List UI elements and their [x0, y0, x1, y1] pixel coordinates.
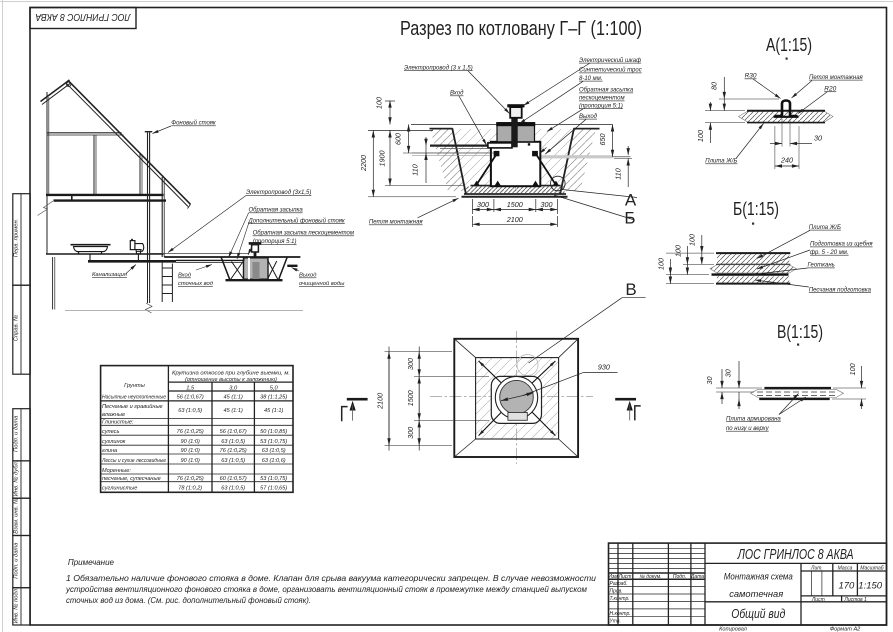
- svg-text:сточных вод из дома. (См. рис.: сточных вод из дома. (См. рис. дополните…: [66, 596, 311, 605]
- svg-text:Геоткань: Геоткань: [808, 263, 835, 269]
- svg-text:63 (1:0,5): 63 (1:0,5): [221, 486, 245, 492]
- svg-text:45 (1:1): 45 (1:1): [224, 408, 243, 414]
- svg-text:8-10 мм.: 8-10 мм.: [579, 76, 603, 82]
- svg-text:Масса: Масса: [838, 565, 853, 571]
- svg-text:45 (1:1): 45 (1:1): [224, 395, 243, 401]
- svg-text:Синтетический трос: Синтетический трос: [579, 67, 642, 74]
- svg-text:глина: глина: [102, 448, 117, 454]
- svg-text:Петля монтажная: Петля монтажная: [809, 75, 864, 81]
- svg-text:очищенной воды: очищенной воды: [299, 280, 345, 287]
- svg-text:38 (1:1,25): 38 (1:1,25): [260, 395, 287, 401]
- svg-text:76 (1:0,25): 76 (1:0,25): [220, 448, 247, 454]
- svg-text:600: 600: [394, 133, 403, 145]
- svg-text:фр. 5 - 20 мм.: фр. 5 - 20 мм.: [810, 250, 849, 256]
- svg-text:56 (1:0,67): 56 (1:0,67): [177, 395, 204, 401]
- svg-text:Подп.: Подп.: [673, 574, 686, 580]
- svg-text:Перв. примен.: Перв. примен.: [14, 219, 20, 258]
- svg-text:В(1:15): В(1:15): [777, 322, 823, 342]
- svg-text:300: 300: [541, 200, 553, 209]
- svg-text:R20: R20: [824, 85, 836, 92]
- svg-text:Грунты: Грунты: [124, 383, 146, 389]
- svg-text:устройства вентиляционного фон: устройства вентиляционного фонового стоя…: [65, 585, 588, 594]
- svg-text:Лит.: Лит.: [810, 565, 823, 571]
- svg-text:Б(1:15): Б(1:15): [733, 199, 779, 219]
- svg-text:100: 100: [696, 130, 705, 142]
- svg-text:(пропорция 5:1): (пропорция 5:1): [253, 239, 297, 245]
- svg-text:63 (1:0,6): 63 (1:0,6): [262, 458, 286, 464]
- svg-text:300: 300: [477, 200, 489, 209]
- svg-text:ЛОС ГРИНЛОС 8 АКВА: ЛОС ГРИНЛОС 8 АКВА: [36, 11, 132, 23]
- svg-text:1500: 1500: [406, 390, 415, 406]
- svg-text:63 (1:0,5): 63 (1:0,5): [262, 448, 286, 454]
- svg-text:А: А: [625, 191, 637, 210]
- svg-text:Т.контр.: Т.контр.: [610, 596, 630, 602]
- svg-text:Б: Б: [624, 209, 635, 228]
- svg-text:(пропорция 5:1): (пропорция 5:1): [579, 103, 623, 109]
- svg-text:Изм: Изм: [608, 574, 618, 580]
- svg-text:30: 30: [814, 133, 822, 142]
- svg-text:Листов 1: Листов 1: [843, 597, 867, 603]
- svg-text:ЛОС ГРИНЛОС 8 АКВА: ЛОС ГРИНЛОС 8 АКВА: [737, 547, 854, 563]
- svg-text:R30: R30: [745, 73, 757, 80]
- svg-text:30: 30: [705, 377, 714, 385]
- svg-text:по низу и верху: по низу и верху: [726, 426, 770, 432]
- svg-text:Подп. и дата: Подп. и дата: [14, 415, 20, 452]
- svg-text:100: 100: [375, 97, 384, 109]
- svg-text:5,0: 5,0: [270, 385, 279, 391]
- svg-text:Справ. №: Справ. №: [14, 315, 20, 341]
- svg-text:110: 110: [614, 168, 623, 179]
- svg-text:2200: 2200: [359, 155, 368, 172]
- svg-text:Формат А2: Формат А2: [830, 627, 861, 632]
- svg-text:76 (1:0,25): 76 (1:0,25): [177, 429, 204, 435]
- svg-text:Плита Ж/Б: Плита Ж/Б: [809, 225, 841, 231]
- svg-text:56 (1:0,67): 56 (1:0,67): [220, 429, 247, 435]
- svg-text:80: 80: [710, 82, 719, 90]
- svg-text:Плита армирована: Плита армирована: [726, 416, 781, 422]
- svg-text:песчаные, супесчаные: песчаные, супесчаные: [102, 476, 161, 482]
- svg-text:Разраб.: Разраб.: [610, 581, 628, 587]
- svg-text:30: 30: [724, 369, 733, 377]
- svg-text:63 (1:0,5): 63 (1:0,5): [178, 408, 202, 414]
- svg-text:Крутизна откосов при глубине в: Крутизна откосов при глубине выемки, м.: [172, 371, 290, 377]
- svg-text:1500: 1500: [507, 200, 523, 209]
- svg-text:Петля монтажная: Петля монтажная: [369, 220, 424, 226]
- svg-text:100: 100: [674, 245, 683, 257]
- svg-text:Моренные:: Моренные:: [102, 468, 131, 474]
- svg-text:650: 650: [598, 134, 607, 146]
- svg-text:суглинок: суглинок: [102, 439, 126, 445]
- svg-text:300: 300: [406, 427, 415, 439]
- svg-text:53 (1:0,75): 53 (1:0,75): [260, 476, 287, 482]
- svg-text:78 (1:0,2): 78 (1:0,2): [178, 486, 202, 492]
- svg-text:Выход: Выход: [299, 273, 317, 279]
- svg-text:суглинистые: суглинистые: [102, 486, 137, 492]
- svg-text:50 (1:0,85): 50 (1:0,85): [260, 429, 287, 435]
- svg-text:Утв.: Утв.: [610, 618, 621, 624]
- svg-text:Подготовка из щебня: Подготовка из щебня: [810, 242, 873, 248]
- svg-text:Копировал: Копировал: [719, 626, 748, 632]
- svg-text:90 (1:0): 90 (1:0): [181, 458, 200, 464]
- svg-text:влажные: влажные: [102, 412, 125, 418]
- svg-text:Лист: Лист: [811, 597, 825, 603]
- svg-text:супесь: супесь: [102, 429, 119, 435]
- svg-text:Подп. и дата: Подп. и дата: [14, 542, 20, 579]
- svg-text:Дополнительный фоновый стояк: Дополнительный фоновый стояк: [248, 217, 346, 224]
- svg-text:1:150: 1:150: [858, 581, 882, 592]
- svg-text:Вход: Вход: [450, 91, 464, 97]
- svg-text:90 (1:0): 90 (1:0): [181, 448, 200, 454]
- svg-text:Примечание: Примечание: [68, 558, 115, 567]
- svg-text:Электропровод (3х1,5): Электропровод (3х1,5): [246, 190, 311, 196]
- svg-text:57 (1:0,65): 57 (1:0,65): [260, 486, 287, 492]
- svg-text:Обратная засыпка пескоцементом: Обратная засыпка пескоцементом: [253, 231, 354, 237]
- svg-text:(отношение высоты к заложению): (отношение высоты к заложению): [185, 377, 277, 383]
- svg-text:Пров.: Пров.: [610, 589, 623, 595]
- svg-text:240: 240: [780, 156, 793, 165]
- svg-text:№ докум.: № докум.: [639, 574, 661, 580]
- svg-text:Фоновый стояк: Фоновый стояк: [171, 120, 217, 127]
- svg-text:Электрический шкаф: Электрический шкаф: [579, 57, 641, 64]
- svg-text:пескоцементом: пескоцементом: [579, 96, 625, 102]
- svg-text:76 (1:0,25): 76 (1:0,25): [177, 476, 204, 482]
- svg-text:Вход: Вход: [178, 273, 192, 279]
- svg-text:1,5: 1,5: [186, 385, 195, 391]
- svg-text:Монтажная схема: Монтажная схема: [724, 572, 793, 583]
- svg-text:сточных вод: сточных вод: [178, 281, 214, 287]
- svg-text:930: 930: [598, 363, 610, 372]
- svg-text:самотечная: самотечная: [729, 589, 783, 600]
- svg-text:63 (1:0,5): 63 (1:0,5): [221, 439, 245, 445]
- svg-text:Электропровод (3 х 1,5): Электропровод (3 х 1,5): [404, 65, 473, 71]
- svg-text:100: 100: [688, 234, 697, 246]
- svg-text:Песчаные и гравийные: Песчаные и гравийные: [102, 403, 163, 410]
- svg-text:Инв. № подл.: Инв. № подл.: [14, 587, 20, 623]
- svg-text:Лессы и сухие лессовидные: Лессы и сухие лессовидные: [101, 458, 166, 464]
- svg-text:Обратная засыпка: Обратная засыпка: [249, 208, 304, 214]
- svg-text:Выход: Выход: [579, 114, 598, 120]
- svg-text:Плита Ж/Б: Плита Ж/Б: [705, 159, 737, 165]
- svg-text:3,0: 3,0: [229, 385, 238, 391]
- svg-text:300: 300: [406, 358, 415, 370]
- svg-text:В: В: [625, 280, 636, 299]
- svg-text:45 (1:1): 45 (1:1): [264, 408, 283, 414]
- svg-text:110: 110: [411, 164, 420, 175]
- svg-text:Обратная засыпка: Обратная засыпка: [579, 88, 634, 94]
- svg-text:Глинистые:: Глинистые:: [102, 420, 134, 426]
- svg-text:53 (1:0,75): 53 (1:0,75): [260, 439, 287, 445]
- svg-text:60 (1:0,57): 60 (1:0,57): [220, 476, 247, 482]
- svg-text:Дата: Дата: [690, 574, 704, 580]
- svg-text:63 (1:0,5): 63 (1:0,5): [221, 458, 245, 464]
- svg-text:Разрез по котловану Г–Г (1:100: Разрез по котловану Г–Г (1:100): [400, 17, 642, 40]
- svg-text:Песчаная подготовка: Песчаная подготовка: [809, 287, 872, 293]
- svg-text:А(1:15): А(1:15): [766, 35, 812, 55]
- svg-text:Масштаб: Масштаб: [860, 565, 884, 571]
- svg-text:100: 100: [657, 258, 666, 270]
- svg-text:100: 100: [848, 363, 857, 375]
- svg-text:170: 170: [838, 581, 855, 592]
- svg-text:Насыпные неуплотненные: Насыпные неуплотненные: [102, 395, 166, 401]
- svg-text:Н.контр.: Н.контр.: [610, 611, 631, 617]
- svg-text:Инв. № дубл.: Инв. № дубл.: [14, 461, 20, 497]
- svg-text:2100: 2100: [506, 215, 523, 224]
- svg-text:Общий вид: Общий вид: [731, 606, 785, 621]
- svg-text:1 Обязательно наличие фонового: 1 Обязательно наличие фонового стояка в …: [66, 574, 597, 583]
- svg-text:90 (1:0): 90 (1:0): [181, 439, 200, 445]
- svg-text:Взам. инв. №: Взам. инв. №: [14, 498, 20, 534]
- svg-text:Канализация: Канализация: [92, 272, 127, 278]
- svg-text:1900: 1900: [377, 151, 386, 167]
- svg-text:Лист: Лист: [618, 574, 632, 580]
- svg-text:2100: 2100: [376, 393, 385, 410]
